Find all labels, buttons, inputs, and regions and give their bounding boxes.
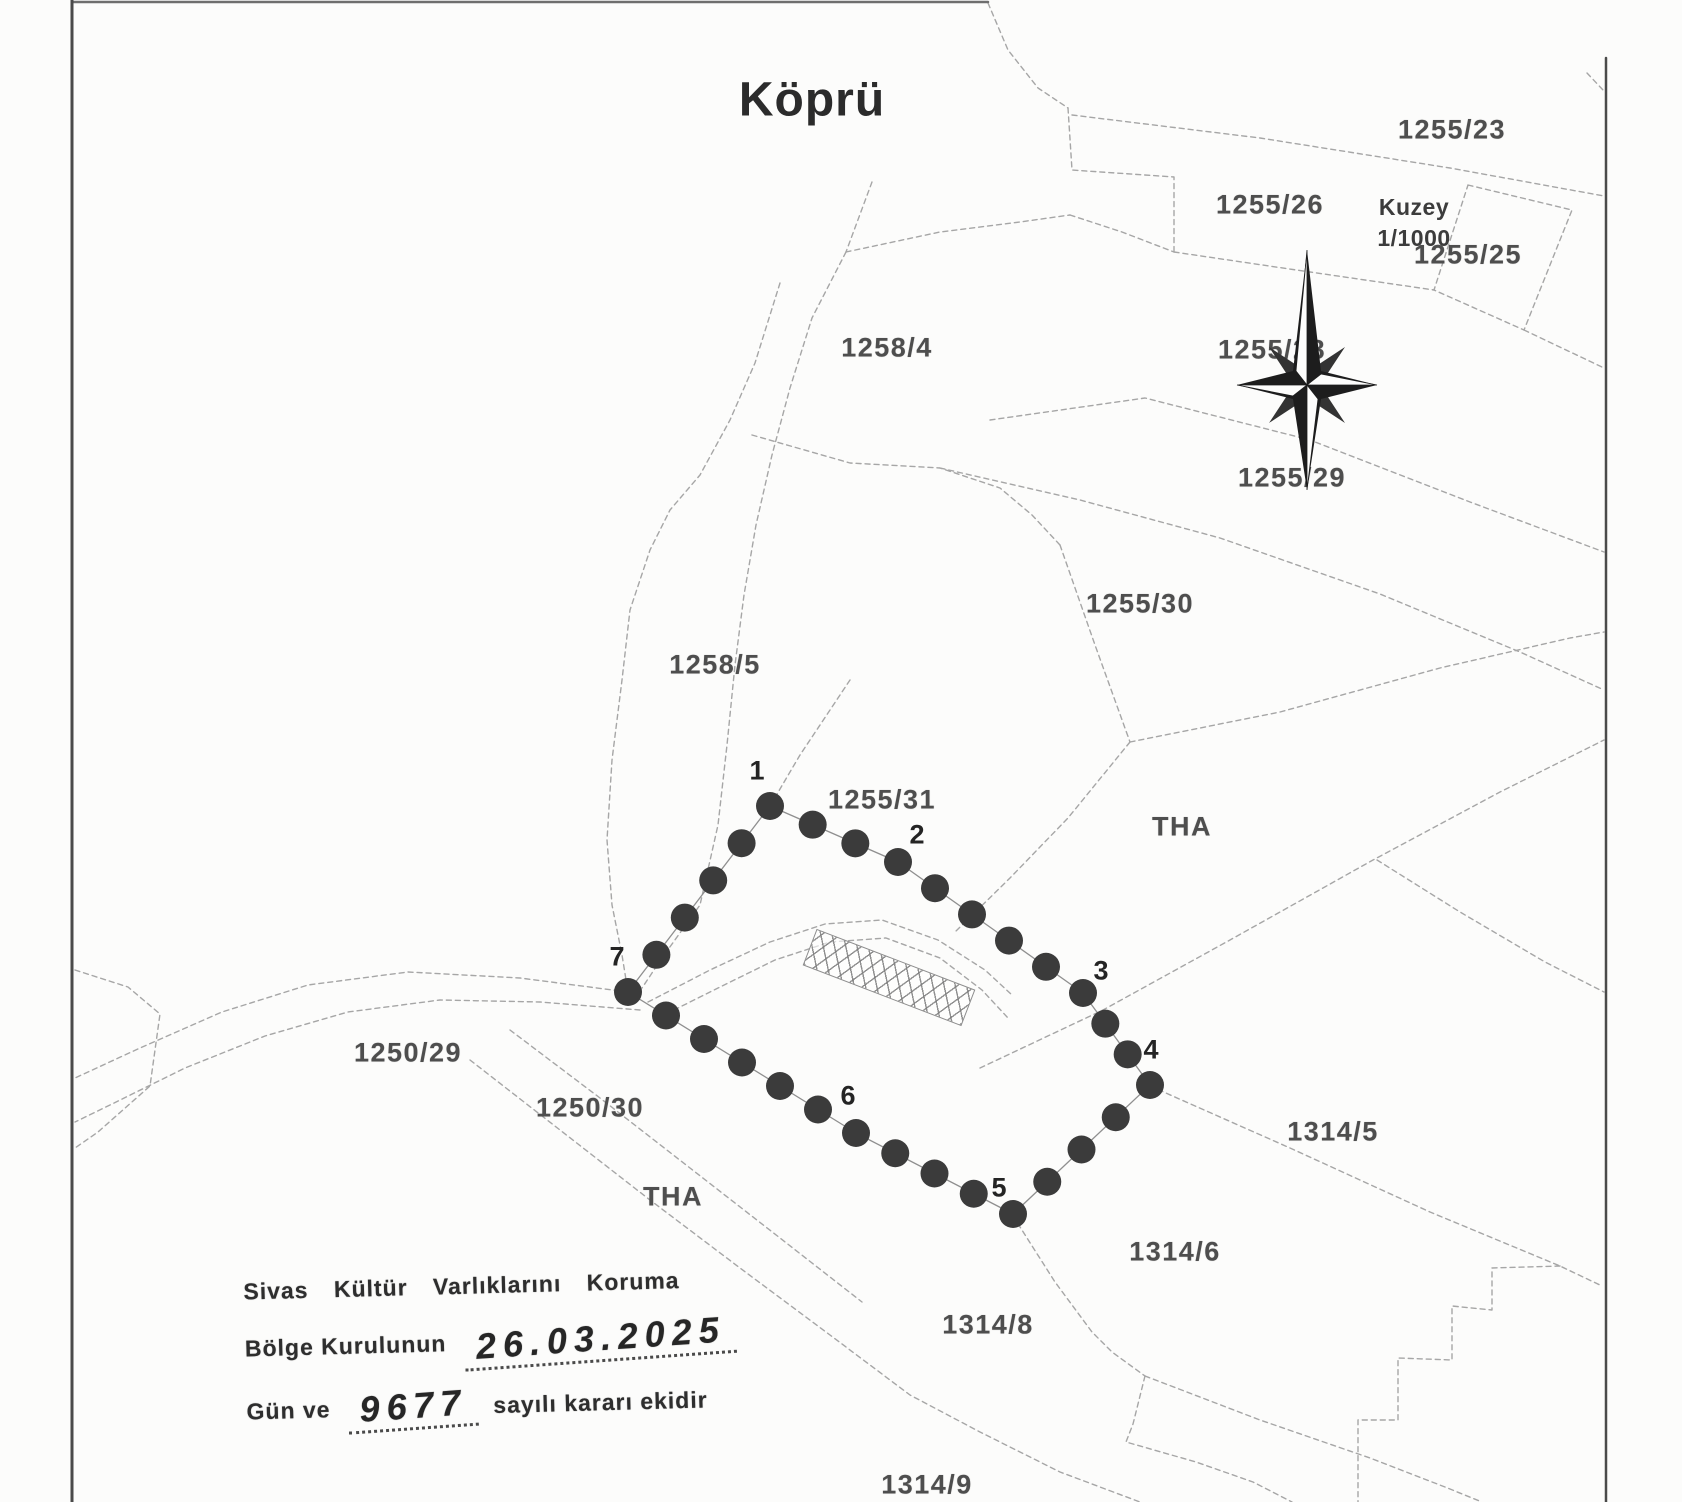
stamp-line2: Bölge Kurulunun 26.03.2025 xyxy=(244,1310,744,1368)
approval-stamp: Sivas Kültür Varlıklarını Koruma Bölge K… xyxy=(243,1265,746,1431)
stamp-handwritten-date: 26.03.2025 xyxy=(462,1308,737,1372)
compass-rose xyxy=(0,0,1682,1502)
cadastral-map-page: Köprü Kuzey 1/1000 1255/23 1255/26 1255/… xyxy=(0,0,1682,1502)
stamp-line3-prefix: Gün ve xyxy=(246,1396,331,1424)
stamp-line3-suffix: sayılı kararı ekidir xyxy=(493,1386,708,1418)
stamp-handwritten-number: 9677 xyxy=(346,1381,479,1435)
stamp-line2-prefix: Bölge Kurulunun xyxy=(245,1330,447,1361)
